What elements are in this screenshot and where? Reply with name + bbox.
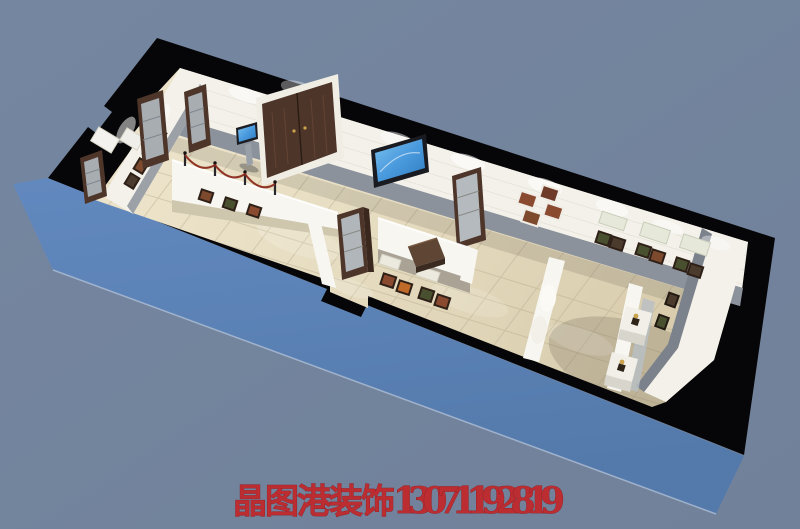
photo-frame (199, 189, 214, 202)
watermark-phone: 13071192819 (393, 480, 565, 522)
exhibition-hall-rendering: 晶图港装饰13071192819 (0, 0, 800, 529)
photo-frame (247, 204, 262, 217)
watermark-text: 晶图港装饰13071192819 (233, 480, 565, 522)
rendering-canvas: 晶图港装饰13071192819 (0, 0, 800, 529)
watermark-brand: 晶图港装饰 (233, 482, 395, 522)
door-handle (303, 126, 306, 129)
artifact-gold-top (634, 314, 639, 319)
artifact-gold-top (620, 360, 625, 365)
door-handle (292, 129, 295, 132)
photo-frame (223, 197, 238, 210)
display-cabinet-backwall (452, 167, 486, 249)
